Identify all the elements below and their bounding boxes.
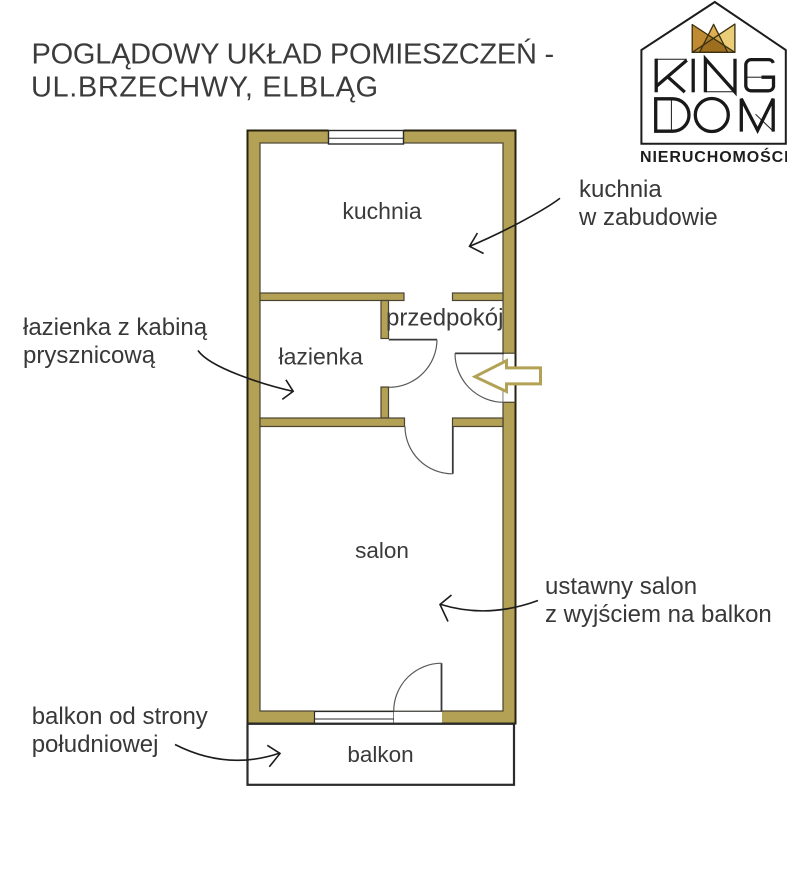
svg-text:w zabudowie: w zabudowie <box>578 204 718 231</box>
svg-text:prysznicową: prysznicową <box>23 342 156 369</box>
svg-text:salon: salon <box>355 538 409 563</box>
svg-text:kuchnia: kuchnia <box>342 198 421 224</box>
svg-text:POGLĄDOWY UKŁAD POMIESZCZEŃ -: POGLĄDOWY UKŁAD POMIESZCZEŃ - <box>32 38 554 71</box>
svg-text:balkon: balkon <box>347 742 413 767</box>
svg-text:ustawny salon: ustawny salon <box>545 573 697 600</box>
svg-text:z wyjściem na balkon: z wyjściem na balkon <box>545 601 772 628</box>
svg-text:UL.BRZECHWY, ELBLĄG: UL.BRZECHWY, ELBLĄG <box>31 72 379 104</box>
svg-text:łazienka: łazienka <box>279 344 364 370</box>
svg-text:NIERUCHOMOŚCI: NIERUCHOMOŚCI <box>640 147 787 166</box>
svg-text:kuchnia: kuchnia <box>579 176 662 203</box>
svg-text:południowej: południowej <box>32 731 159 758</box>
svg-text:balkon od strony: balkon od strony <box>32 703 208 730</box>
svg-text:łazienka z kabiną: łazienka z kabiną <box>23 314 208 341</box>
svg-text:przedpokój: przedpokój <box>386 304 503 331</box>
